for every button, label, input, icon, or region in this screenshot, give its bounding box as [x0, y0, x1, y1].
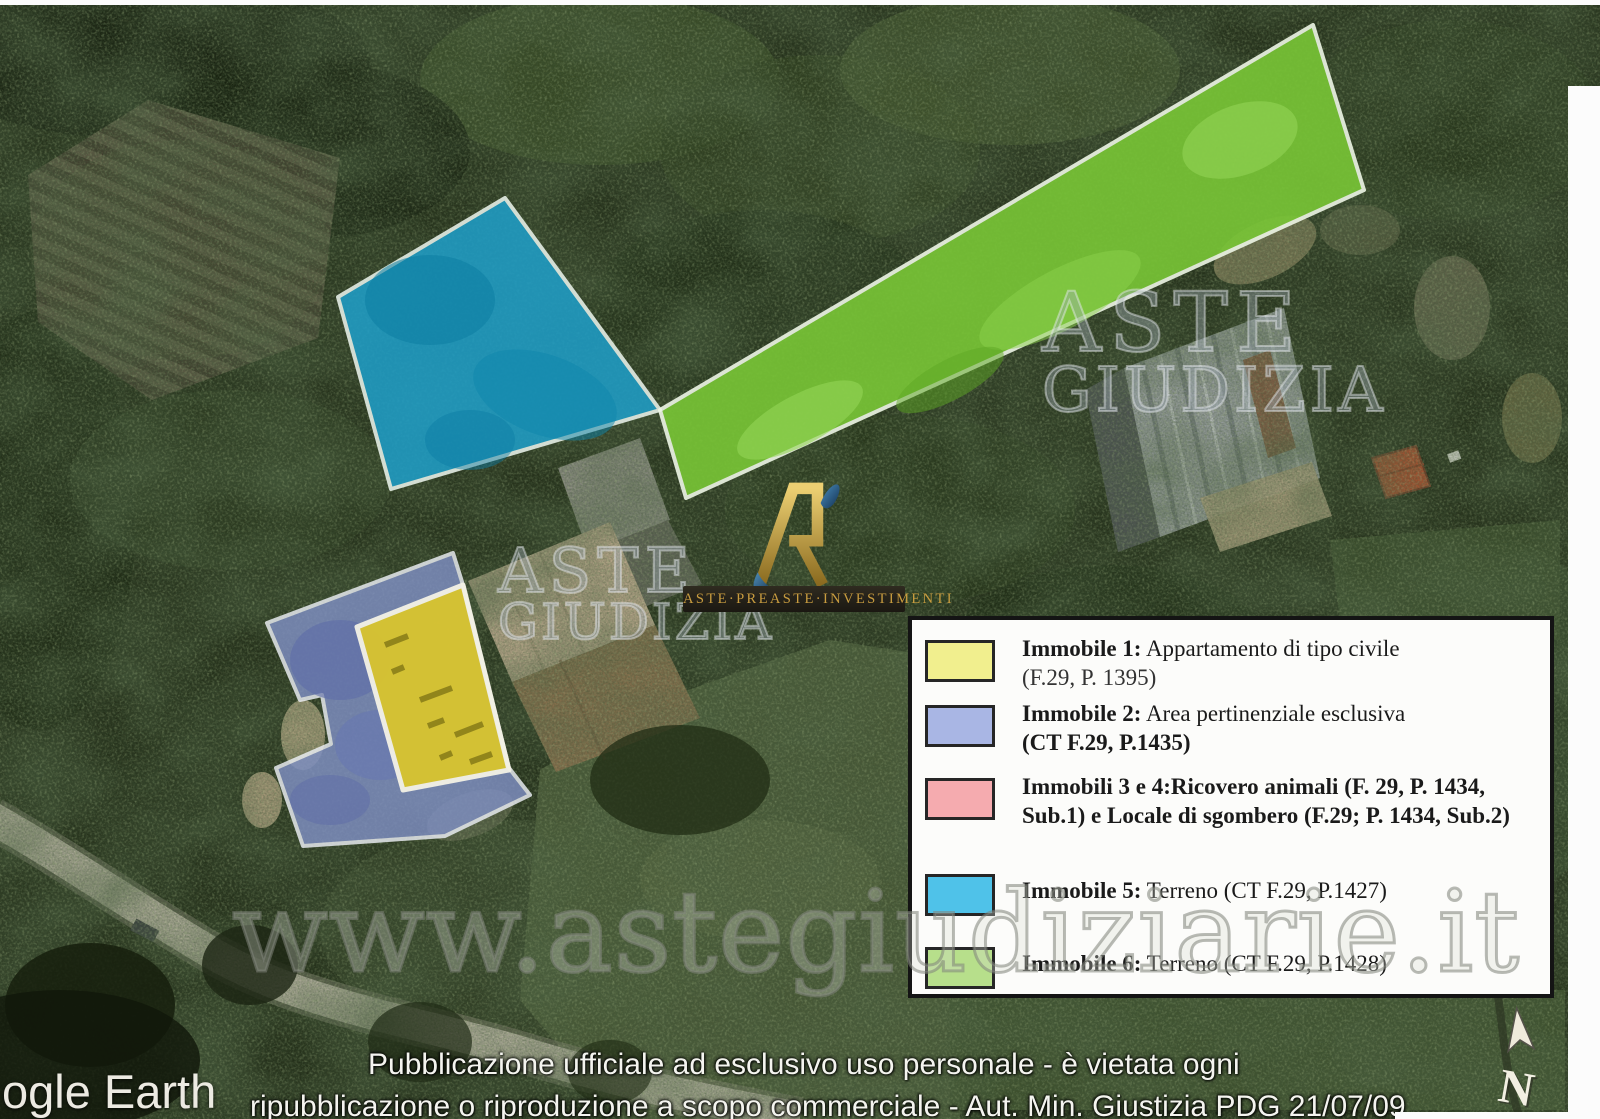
agency-logo-icon	[751, 480, 841, 590]
google-earth-logo: ogle Earth	[2, 1064, 216, 1119]
legend-ref: (CT F.29, P.1435)	[1022, 728, 1537, 757]
legend-row-immobili3e4: Immobili 3 e 4:Ricovero animali (F. 29, …	[1022, 772, 1537, 830]
watermark-tile-line2: GIUDIZIA	[1042, 361, 1387, 418]
footer-disclaimer-line1: Pubblicazione ufficiale ad esclusivo uso…	[368, 1048, 1240, 1082]
legend-swatch-immobile2	[925, 705, 995, 747]
legend-row-immobile1: Immobile 1: Appartamento di tipo civile …	[1022, 634, 1537, 692]
legend-swatch-immobili3e4	[925, 778, 995, 820]
footer-disclaimer-line2: ripubblicazione o riproduzione a scopo c…	[250, 1090, 1406, 1119]
watermark-tile-right: ASTE GIUDIZIA	[1042, 286, 1387, 418]
legend-text: Area pertinenziale esclusiva	[1141, 701, 1405, 726]
watermark-tile-line1: ASTE	[1042, 286, 1387, 361]
auction-aerial-map-page: N N ASTE GIUDIZIA ASTE GIUDIZIA ASTE·PRE	[0, 0, 1600, 1119]
legend-text: Appartamento di tipo civile	[1141, 636, 1399, 661]
legend-row-immobile2: Immobile 2: Area pertinenziale esclusiva…	[1022, 699, 1537, 757]
legend-label: Immobili 3 e 4:	[1022, 774, 1171, 799]
legend-ref: (F.29, P. 1395)	[1022, 663, 1537, 692]
agency-logo: ASTE·PREASTE·INVESTIMENTI	[655, 462, 915, 622]
legend-swatch-immobile1	[925, 640, 995, 682]
page-margin-top	[0, 0, 1600, 5]
legend-label: Immobile 2:	[1022, 701, 1141, 726]
legend-label: Immobile 1:	[1022, 636, 1141, 661]
page-margin-right	[1568, 86, 1600, 1119]
agency-logo-text: ASTE·PREASTE·INVESTIMENTI	[683, 586, 905, 612]
site-watermark: www.astegiudiziarie.it	[232, 868, 1520, 998]
page-margin-bottom	[1395, 1112, 1600, 1119]
